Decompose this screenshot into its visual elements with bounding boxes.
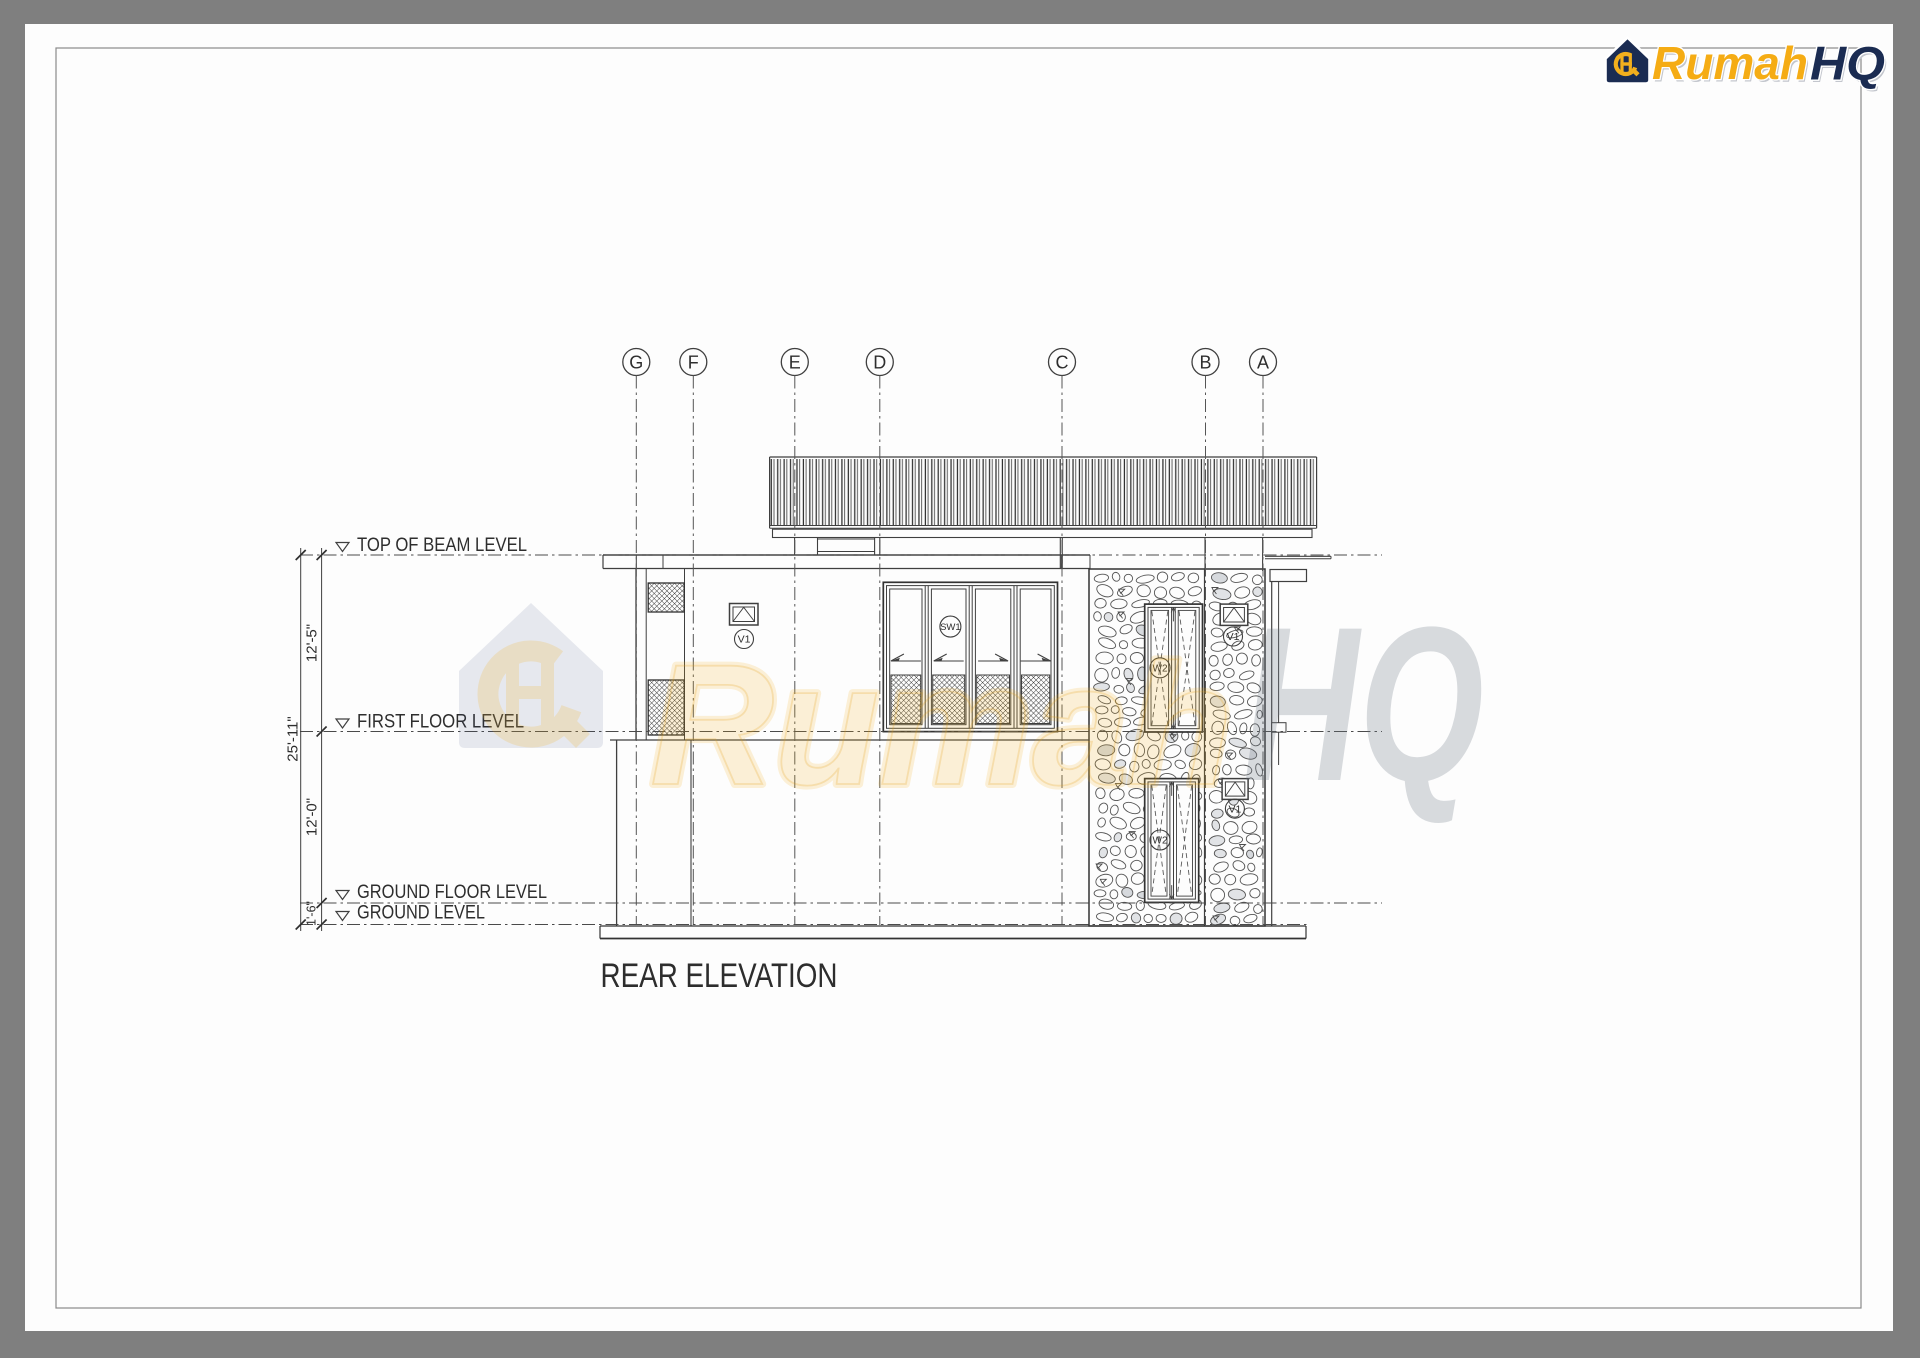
svg-text:B: B <box>1199 352 1211 372</box>
svg-text:W2: W2 <box>1153 836 1168 847</box>
svg-text:A: A <box>1257 352 1269 372</box>
svg-text:GROUND LEVEL: GROUND LEVEL <box>357 902 485 924</box>
svg-text:E: E <box>789 352 801 372</box>
svg-text:12'-5": 12'-5" <box>304 624 321 662</box>
svg-text:Rumah: Rumah <box>1652 37 1808 89</box>
svg-text:1'-6": 1'-6" <box>305 901 319 926</box>
svg-text:C: C <box>1056 352 1069 372</box>
svg-text:12'-0": 12'-0" <box>304 798 321 836</box>
svg-text:Rumah: Rumah <box>650 629 1233 821</box>
svg-text:GROUND FLOOR LEVEL: GROUND FLOOR LEVEL <box>357 881 547 903</box>
svg-text:G: G <box>629 352 643 372</box>
svg-text:D: D <box>873 352 886 372</box>
svg-text:F: F <box>688 352 699 372</box>
svg-text:HQ: HQ <box>1243 581 1484 827</box>
svg-text:25'-11": 25'-11" <box>285 716 302 761</box>
svg-text:TOP OF BEAM LEVEL: TOP OF BEAM LEVEL <box>357 534 527 556</box>
svg-text:REAR ELEVATION: REAR ELEVATION <box>601 957 838 995</box>
svg-text:HQ: HQ <box>1810 37 1885 90</box>
